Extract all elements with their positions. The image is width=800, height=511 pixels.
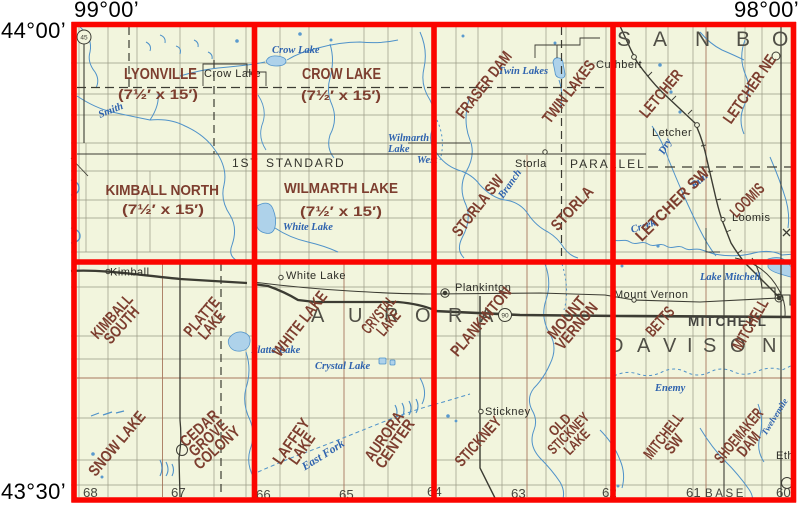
svg-text:A: A [637, 335, 651, 357]
svg-text:44°00’: 44°00’ [1, 18, 66, 43]
svg-text:R: R [448, 305, 462, 327]
svg-text:I: I [687, 335, 693, 357]
svg-text:Mount Vernon: Mount Vernon [614, 289, 689, 301]
svg-text:Storla: Storla [515, 158, 547, 170]
svg-text:White Lake: White Lake [286, 270, 346, 282]
svg-text:Enemy: Enemy [654, 383, 686, 394]
svg-text:CROW LAKE: CROW LAKE [302, 66, 381, 83]
svg-text:White Lake: White Lake [283, 222, 333, 233]
svg-text:45: 45 [80, 35, 88, 42]
svg-text:(7½′ x 15′): (7½′ x 15′) [118, 87, 198, 102]
svg-text:KIMBALL NORTH: KIMBALL NORTH [106, 182, 220, 199]
svg-text:Crow Lake: Crow Lake [272, 45, 320, 56]
svg-text:S: S [703, 335, 716, 357]
svg-text:STANDARD: STANDARD [266, 156, 346, 170]
svg-text:(7½′ x 15′): (7½′ x 15′) [301, 88, 381, 103]
svg-text:Letcher: Letcher [652, 127, 692, 139]
svg-text:LYONVILLE: LYONVILLE [124, 66, 197, 83]
svg-text:S: S [617, 28, 631, 51]
svg-text:Cuthbert: Cuthbert [596, 59, 642, 71]
svg-text:99°00’: 99°00’ [74, 0, 139, 22]
svg-text:Lake Mitchell: Lake Mitchell [699, 272, 760, 283]
svg-text:V: V [663, 335, 677, 357]
svg-text:(7½′ x 15′): (7½′ x 15′) [122, 202, 204, 217]
svg-text:PARALLEL: PARALLEL [570, 157, 646, 171]
svg-text:Lake: Lake [387, 144, 410, 155]
svg-text:O: O [415, 305, 431, 327]
svg-text:43°30’: 43°30’ [1, 479, 66, 504]
svg-text:(7½′ x 15′): (7½′ x 15′) [300, 204, 382, 219]
svg-text:Wilmarth: Wilmarth [388, 133, 429, 144]
svg-text:A: A [653, 28, 667, 51]
svg-text:WILMARTH LAKE: WILMARTH LAKE [284, 180, 398, 197]
svg-text:98°00’: 98°00’ [734, 0, 799, 22]
svg-text:B: B [736, 28, 750, 51]
svg-text:Kimball: Kimball [110, 267, 150, 279]
svg-text:Crystal Lake: Crystal Lake [315, 361, 370, 372]
svg-text:O: O [772, 28, 788, 51]
svg-text:N: N [695, 28, 710, 51]
svg-text:90: 90 [501, 313, 509, 320]
svg-text:N: N [762, 335, 776, 357]
